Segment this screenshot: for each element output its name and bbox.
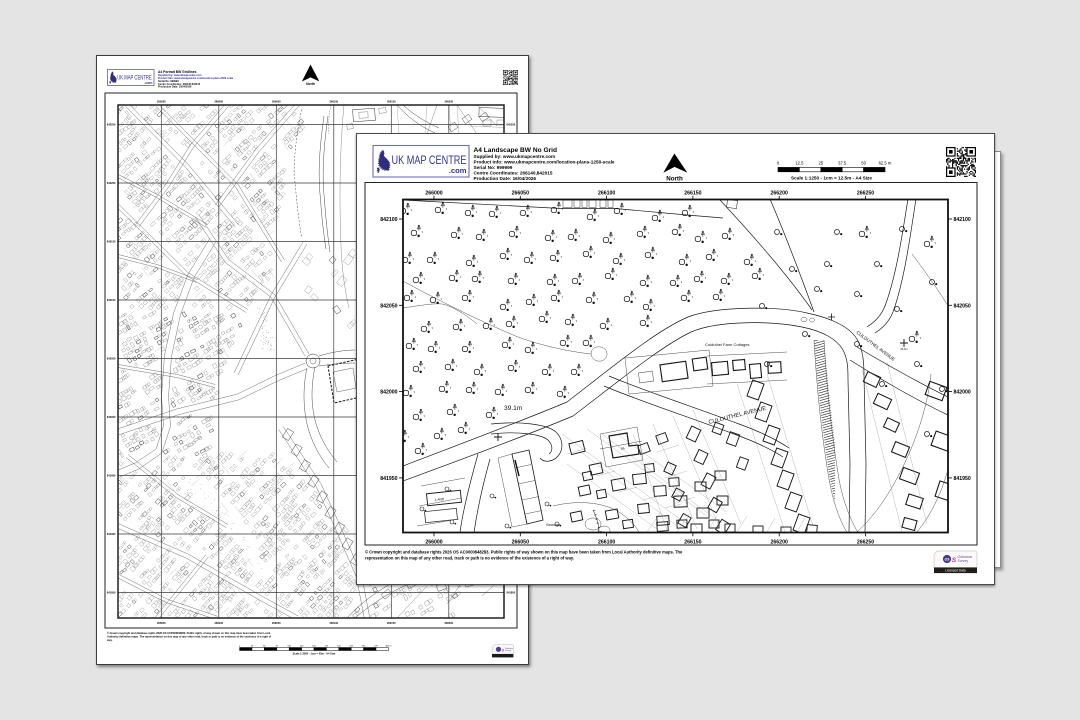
- svg-text:842100: 842100: [380, 217, 397, 223]
- svg-text:266050: 266050: [272, 100, 281, 104]
- svg-text:266000: 266000: [214, 621, 223, 625]
- svg-text:842100: 842100: [107, 298, 116, 302]
- svg-text:842000: 842000: [107, 415, 116, 419]
- svg-text:842050: 842050: [380, 303, 397, 309]
- svg-text:266200: 266200: [771, 540, 788, 546]
- svg-text:.com: .com: [449, 166, 467, 175]
- svg-text:841900: 841900: [107, 532, 116, 536]
- svg-text:842100: 842100: [954, 217, 971, 223]
- svg-text:266150: 266150: [387, 621, 396, 625]
- svg-text:265950: 265950: [157, 621, 166, 625]
- svg-text:84: 84: [621, 446, 625, 451]
- svg-text:266150: 266150: [684, 191, 701, 197]
- svg-text:266000: 266000: [425, 540, 442, 546]
- svg-text:Licensed Data: Licensed Data: [945, 569, 966, 573]
- svg-text:266100: 266100: [598, 191, 615, 197]
- svg-text:300 m: 300 m: [385, 645, 391, 647]
- svg-text:Culduthel Farm Cottages: Culduthel Farm Cottages: [705, 342, 749, 347]
- svg-text:266050: 266050: [272, 621, 281, 625]
- svg-text:266250: 266250: [857, 191, 874, 197]
- svg-text:842050: 842050: [107, 357, 116, 361]
- svg-text:842000: 842000: [380, 390, 397, 396]
- svg-text:Product Info: www.ukmapcentre.: Product Info: www.ukmapcentre.com/locati…: [474, 160, 615, 165]
- svg-text:265950: 265950: [157, 100, 166, 104]
- svg-text:Production Date: 16/04/2026: Production Date: 16/04/2026: [474, 176, 537, 181]
- svg-text:North: North: [306, 82, 315, 86]
- svg-text:266050: 266050: [512, 191, 529, 197]
- svg-text:Survey: Survey: [958, 559, 969, 563]
- svg-text:266100: 266100: [598, 540, 615, 546]
- svg-text:841950: 841950: [107, 474, 116, 478]
- svg-text:841850: 841850: [107, 591, 116, 595]
- svg-text:842250: 842250: [507, 123, 516, 127]
- svg-text:266200: 266200: [444, 621, 453, 625]
- svg-text:266100: 266100: [329, 621, 338, 625]
- svg-text:842200: 842200: [107, 181, 116, 185]
- svg-text:© Crown copyright and database: © Crown copyright and database rights 20…: [107, 631, 271, 635]
- svg-text:842250: 842250: [107, 123, 116, 127]
- svg-text:.com: .com: [144, 81, 152, 85]
- svg-text:Sewage: Sewage: [546, 522, 561, 527]
- svg-text:OS: OS: [945, 557, 951, 561]
- svg-text:Centre Coordinates: 266140,842: Centre Coordinates: 266140,842015: [474, 171, 553, 176]
- svg-text:266050: 266050: [512, 540, 529, 546]
- svg-text:UK MAP CENTRE: UK MAP CENTRE: [392, 153, 467, 167]
- svg-text:266100: 266100: [329, 100, 338, 104]
- svg-text:25: 25: [818, 160, 823, 165]
- svg-text:266150: 266150: [387, 100, 396, 104]
- svg-text:842000: 842000: [954, 390, 971, 396]
- svg-text:841850: 841850: [507, 591, 516, 595]
- svg-text:266000: 266000: [425, 191, 442, 197]
- svg-text:Serial No: 999999: Serial No: 999999: [474, 165, 513, 170]
- svg-text:39.1m: 39.1m: [504, 405, 523, 412]
- svg-text:266150: 266150: [684, 540, 701, 546]
- svg-text:62.5 m: 62.5 m: [879, 160, 892, 165]
- svg-text:841950: 841950: [954, 476, 971, 482]
- svg-text:266200: 266200: [771, 191, 788, 197]
- svg-text:Scale 1:2500 - 1cm = 25m - A4: Scale 1:2500 - 1cm = 25m - A4 Size: [293, 652, 336, 656]
- svg-text:266250: 266250: [857, 540, 874, 546]
- svg-text:37.5: 37.5: [838, 160, 847, 165]
- svg-text:Survey: Survey: [505, 649, 511, 652]
- svg-text:Production Date: 16/04/2026: Production Date: 16/04/2026: [158, 86, 192, 89]
- svg-text:12.5: 12.5: [795, 160, 804, 165]
- svg-text:266200: 266200: [444, 100, 453, 104]
- svg-text:842150: 842150: [107, 240, 116, 244]
- svg-text:North: North: [666, 176, 683, 183]
- svg-text:A4 Landscape BW No Grid: A4 Landscape BW No Grid: [474, 147, 558, 154]
- svg-text:841950: 841950: [380, 476, 397, 482]
- svg-text:Supplied by: www.ukmapcentre.c: Supplied by: www.ukmapcentre.com: [474, 154, 556, 159]
- svg-text:36.0m: 36.0m: [900, 347, 907, 351]
- svg-text:representation on this map of: representation on this map of any other …: [365, 556, 574, 561]
- svg-text:way.: way.: [107, 639, 113, 642]
- svg-text:© Crown copyright and database: © Crown copyright and database rights 20…: [365, 550, 683, 555]
- svg-text:Authority definitive maps. The: Authority definitive maps. The represent…: [107, 635, 271, 639]
- svg-text:50: 50: [861, 160, 866, 165]
- svg-text:266000: 266000: [214, 100, 223, 104]
- svg-text:842050: 842050: [954, 303, 971, 309]
- svg-text:Scale 1:1250 - 1cm = 12.5m - A: Scale 1:1250 - 1cm = 12.5m - A4 Size: [791, 175, 872, 180]
- svg-text:S: S: [952, 557, 957, 564]
